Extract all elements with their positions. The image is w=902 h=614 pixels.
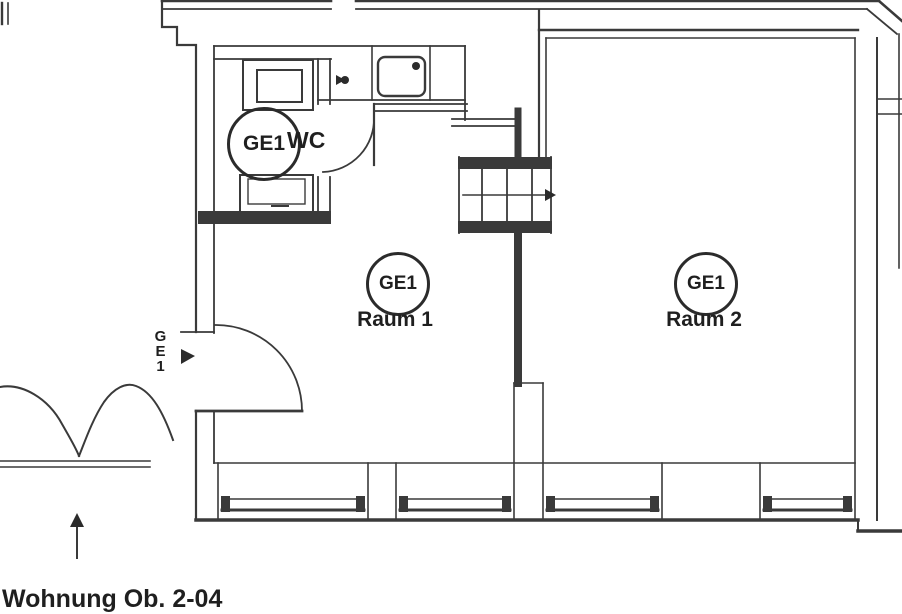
room2-name-label: Raum 2 (648, 308, 760, 332)
sink-icon (378, 57, 425, 96)
room2-unit-badge: GE1 (674, 252, 738, 316)
window-3 (546, 496, 659, 512)
entrance-arrow-icon (181, 349, 195, 364)
room1-unit-badge: GE1 (366, 252, 430, 316)
hall-walls (374, 104, 518, 158)
left-exterior-wall (162, 1, 214, 520)
wc-door (323, 104, 374, 172)
entrance-door (196, 325, 302, 411)
window-1 (221, 496, 365, 512)
staircase (458, 157, 552, 233)
tap-icon (336, 75, 349, 85)
entrance-unit-label: GE1 (153, 328, 168, 396)
window-4 (763, 496, 852, 512)
plan-caption: Wohnung Ob. 2-04 (2, 585, 222, 614)
floor-plan: GE1 WC GE1 Raum 1 GE1 Raum 2 GE1 Wohnung… (0, 0, 902, 602)
room1-name-label: Raum 1 (340, 308, 450, 332)
toilet-icon (243, 60, 313, 110)
exterior-archway (0, 385, 173, 467)
dividing-wall (514, 233, 543, 519)
window-2 (399, 496, 511, 512)
floorplan-drawing (0, 0, 902, 602)
up-arrow-icon (70, 513, 84, 558)
wc-room-label: WC (287, 127, 325, 154)
corner-mark (2, 3, 8, 24)
washbasin-icon (240, 175, 313, 212)
